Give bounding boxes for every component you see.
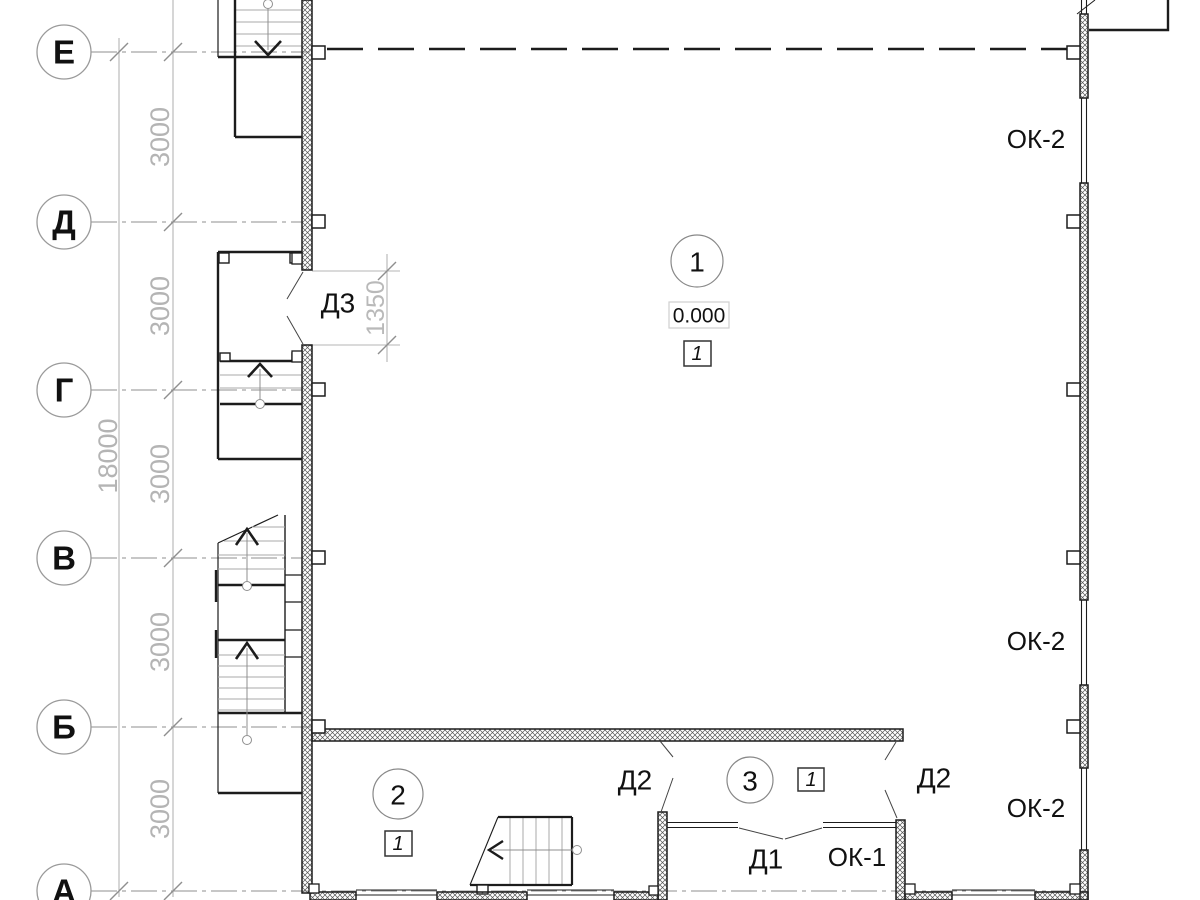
bottom-wall-seg2 [437,892,527,900]
window-mark-ok1: ОК-1 [828,842,887,872]
dim-3000-5: 3000 [145,779,175,839]
floor-mark-room3: 1 [805,769,816,791]
right-wall-seg3 [1080,685,1088,768]
top-right-porch [1077,0,1168,30]
stair-v-b [216,515,302,793]
axis-label-a: А [52,873,76,900]
stair-room2 [470,817,582,894]
right-wall-seg1 [1080,14,1088,98]
stair-path-node [573,846,582,855]
dim-3000-4: 3000 [145,612,175,672]
dim-3000-1: 3000 [145,107,175,167]
windows [356,0,1087,895]
dim-3000-3: 3000 [145,444,175,504]
door-mark-d1: Д1 [749,844,784,875]
walls [302,0,1088,900]
jamb-squares [219,253,302,361]
stair-top-left [218,0,302,137]
axis-label-e: Е [53,34,75,71]
room-number-1: 1 [689,247,705,278]
left-wall-upper [302,0,312,270]
stair-path-node [264,0,273,9]
left-wall-lower [302,345,312,893]
door-mark-d3: Д3 [321,288,356,319]
duct-cells [285,575,302,657]
window-mark-ok2-top: ОК-2 [1007,124,1066,154]
door-mark-d2-right: Д2 [917,763,952,794]
window-mark-ok2-bot: ОК-2 [1007,793,1066,823]
right-wall-seg2 [1080,183,1088,600]
axis-label-g: Г [55,372,74,409]
floor-mark-room2: 1 [392,833,403,855]
stair-path-node [243,736,252,745]
elevation-value: 0.000 [673,305,726,328]
room-number-2: 2 [390,780,406,811]
floor-plan-sheet: Е Д Г В Б А 3000 3000 3000 3000 3000 180… [0,0,1200,900]
vestibule-and-stair-g [218,252,302,459]
elevation-mark: 0.000 [669,302,729,328]
pilasters [312,46,1080,733]
wall-axis-b [312,729,903,741]
dim-3000-2: 3000 [145,276,175,336]
wall-d2-right [896,820,905,900]
dim-1350: 1350 [362,280,390,336]
window-mark-ok2-mid: ОК-2 [1007,626,1066,656]
floor-plan-drawing: Е Д Г В Б А 3000 3000 3000 3000 3000 180… [0,0,1200,900]
door-opening-splays [287,272,897,839]
axis-label-b: Б [52,709,76,746]
dim-18000: 18000 [93,418,123,493]
axis-label-d: Д [52,204,76,241]
door-mark-d2-left: Д2 [618,765,653,796]
stair-path-node [243,582,252,591]
floor-mark-room1: 1 [691,343,702,365]
axis-label-v: В [52,540,76,577]
room-number-3: 3 [742,766,758,797]
stair-path-node [256,400,265,409]
wall-d2-left [658,812,667,900]
axis-bubbles: Е Д Г В Б А [37,25,91,900]
